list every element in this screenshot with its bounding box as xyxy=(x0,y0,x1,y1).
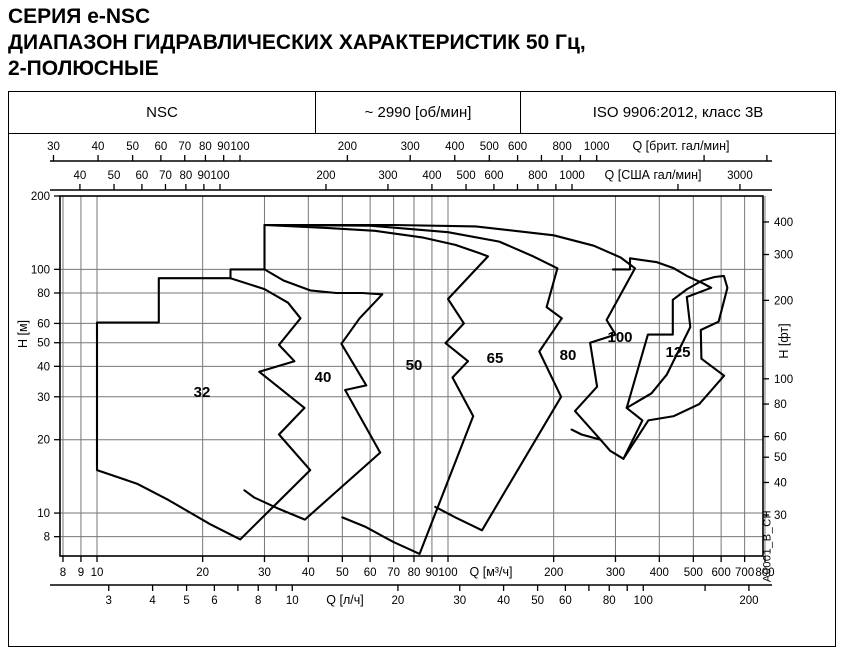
figure-frame: NSC ~ 2990 [об/мин] ISO 9906:2012, класс… xyxy=(8,91,836,647)
drawing-code: A0001_B_CH xyxy=(698,541,838,552)
series-name: NSC xyxy=(9,92,316,133)
figure-header: NSC ~ 2990 [об/мин] ISO 9906:2012, класс… xyxy=(9,92,835,134)
page: СЕРИЯ e-NSC ДИАПАЗОН ГИДРАВЛИЧЕСКИХ ХАРА… xyxy=(0,0,841,648)
pump-speed: ~ 2990 [об/мин] xyxy=(316,92,521,133)
iso-standard: ISO 9906:2012, класс 3В xyxy=(521,92,835,133)
